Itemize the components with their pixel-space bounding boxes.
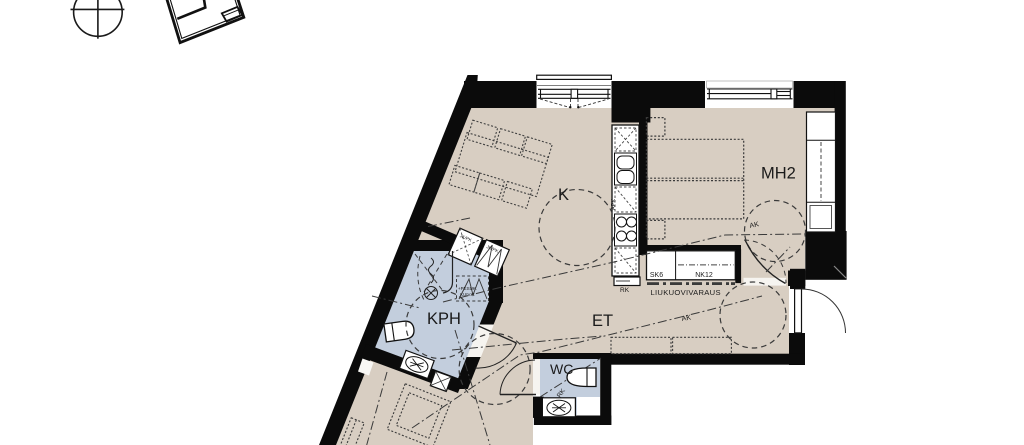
svg-text:APK: APK xyxy=(611,199,617,210)
svg-text:KPH: KPH xyxy=(427,310,461,328)
svg-text:RK: RK xyxy=(620,287,630,294)
svg-text:K: K xyxy=(558,186,569,204)
svg-text:+PESUK.: +PESUK. xyxy=(458,286,477,291)
svg-text:SK6: SK6 xyxy=(650,272,663,279)
svg-text:LIUKUOVIVARAUS: LIUKUOVIVARAUS xyxy=(651,288,721,297)
svg-text:NK12: NK12 xyxy=(695,272,713,279)
svg-text:ET: ET xyxy=(592,312,613,330)
svg-text:WC: WC xyxy=(550,361,573,377)
svg-text:MH2: MH2 xyxy=(761,165,796,183)
